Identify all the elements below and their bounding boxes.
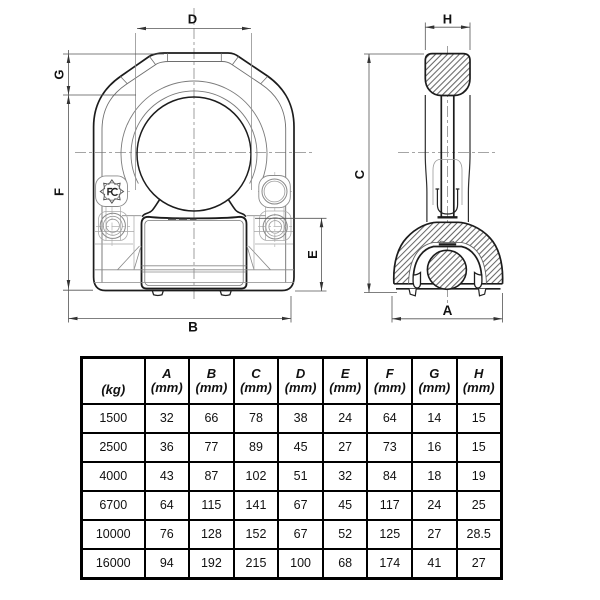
svg-text:E: E <box>305 250 320 259</box>
svg-text:H: H <box>443 12 452 27</box>
svg-text:A: A <box>443 303 453 318</box>
svg-text:G: G <box>52 69 67 79</box>
svg-text:B: B <box>188 320 198 335</box>
svg-text:F: F <box>52 188 67 196</box>
svg-text:D: D <box>188 12 197 27</box>
svg-text:C: C <box>352 169 367 179</box>
